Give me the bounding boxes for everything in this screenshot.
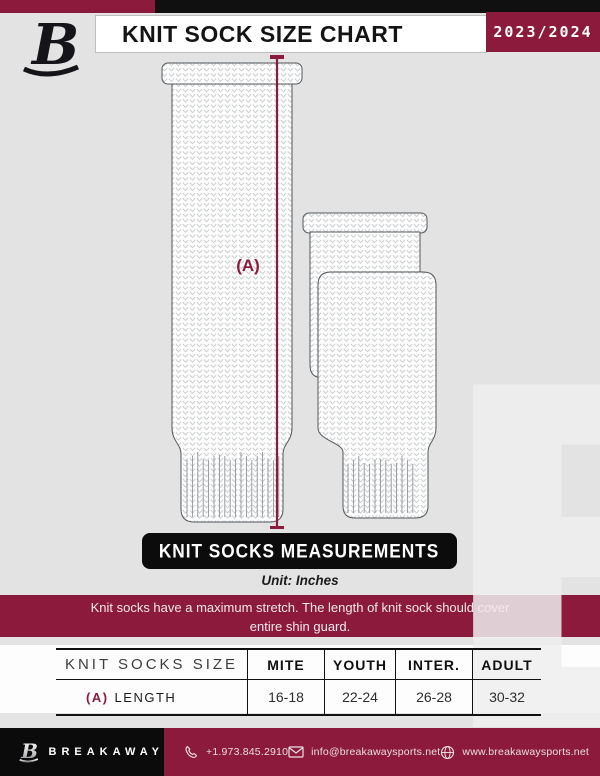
footer-contact-block: +1.973.845.2910 info@breakawaysports.net… (164, 728, 600, 776)
notice-line-2: entire shin guard. (0, 617, 600, 636)
sock-diagram: (A) (0, 0, 600, 600)
season-badge: 2023/2024 (486, 12, 600, 52)
value-adult: 30-32 (472, 680, 541, 714)
column-header-inter: INTER. (395, 650, 472, 680)
size-chart-page: B B KNIT SOCK SIZE CHART 2023/2024 (0, 0, 600, 776)
column-header-youth: YOUTH (324, 650, 395, 680)
globe-icon (440, 745, 455, 760)
size-table: KNIT SOCKS SIZE MITE YOUTH INTER. ADULT … (56, 648, 541, 716)
sock-small (318, 272, 436, 518)
row-label-prefix: (A) (86, 690, 109, 705)
b-monogram-icon: B (18, 737, 40, 767)
footer: B BREAKAWAY +1.973.845.2910 info@breakaw… (0, 728, 600, 776)
notice-text: Knit socks have a maximum stretch. The l… (0, 598, 600, 636)
value-youth: 22-24 (324, 680, 395, 714)
length-label-a: (A) (236, 256, 260, 275)
footer-phone-text: +1.973.845.2910 (206, 746, 288, 758)
footer-brand-block: B BREAKAWAY (0, 728, 164, 776)
footer-website[interactable]: www.breakawaysports.net (440, 745, 589, 760)
row-label-text: LENGTH (115, 690, 177, 705)
footer-website-text: www.breakawaysports.net (462, 746, 589, 758)
title-bar: KNIT SOCK SIZE CHART (95, 15, 487, 53)
measurements-banner-label: KNIT SOCKS MEASUREMENTS (159, 540, 439, 563)
column-header-mite: MITE (247, 650, 324, 680)
column-header-adult: ADULT (472, 650, 541, 680)
unit-label: Unit: Inches (0, 573, 600, 588)
envelope-icon (288, 745, 304, 759)
value-mite: 16-18 (247, 680, 324, 714)
phone-icon (184, 745, 199, 760)
footer-phone[interactable]: +1.973.845.2910 (184, 745, 288, 760)
brand-logo: B (16, 12, 90, 82)
season-label: 2023/2024 (493, 23, 592, 41)
table-title-cell: KNIT SOCKS SIZE (56, 650, 247, 680)
b-monogram-icon: B (16, 12, 90, 82)
footer-brand-name: BREAKAWAY (49, 746, 165, 758)
footer-email[interactable]: info@breakawaysports.net (288, 745, 440, 759)
row-label-length: (A) LENGTH (56, 680, 247, 714)
page-title: KNIT SOCK SIZE CHART (122, 21, 403, 48)
value-inter: 26-28 (395, 680, 472, 714)
notice-line-1: Knit socks have a maximum stretch. The l… (0, 598, 600, 617)
sock-large (162, 63, 302, 522)
footer-email-text: info@breakawaysports.net (311, 746, 440, 758)
measurements-banner: KNIT SOCKS MEASUREMENTS (142, 533, 457, 569)
